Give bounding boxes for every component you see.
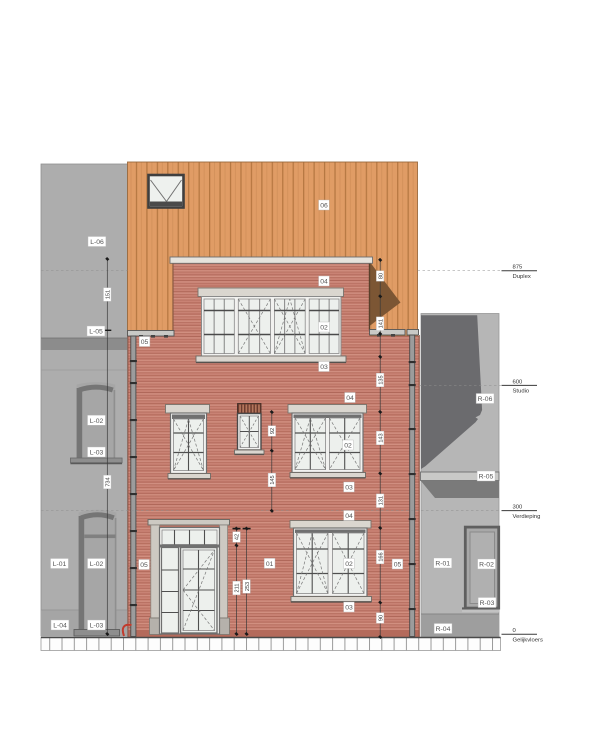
svg-text:05: 05 [141,339,149,346]
svg-text:L-03: L-03 [90,623,104,630]
svg-text:R-02: R-02 [479,562,494,569]
svg-text:42: 42 [235,534,241,540]
svg-text:R-05: R-05 [479,474,494,481]
svg-text:300: 300 [513,505,524,511]
svg-text:734: 734 [106,477,112,486]
svg-text:875: 875 [513,265,524,271]
svg-text:01: 01 [266,561,274,568]
svg-text:R-01: R-01 [435,561,450,568]
svg-text:L-05: L-05 [89,329,103,336]
svg-text:L-04: L-04 [53,623,67,630]
svg-text:L-03: L-03 [90,450,104,457]
svg-text:145: 145 [270,475,276,484]
svg-text:143: 143 [378,433,384,442]
svg-text:L-01: L-01 [53,561,67,568]
svg-text:02: 02 [344,443,352,450]
svg-text:Duplex: Duplex [513,274,531,280]
svg-text:Verdieping: Verdieping [513,514,541,520]
svg-text:04: 04 [320,279,328,286]
svg-text:L-02: L-02 [90,418,104,425]
svg-text:Gelijkvloers: Gelijkvloers [513,637,543,643]
svg-text:04: 04 [345,513,353,520]
svg-text:90: 90 [378,615,384,621]
svg-text:92: 92 [270,428,276,434]
svg-text:L-02: L-02 [90,561,104,568]
svg-text:R-03: R-03 [480,600,495,607]
svg-text:Studio: Studio [513,389,530,395]
svg-text:166: 166 [378,552,384,561]
svg-text:80: 80 [378,273,384,279]
svg-text:135: 135 [378,375,384,384]
svg-text:211: 211 [235,584,241,593]
svg-text:03: 03 [345,485,353,492]
svg-text:03: 03 [345,605,353,612]
svg-text:04: 04 [346,395,354,402]
svg-text:R-06: R-06 [478,396,493,403]
svg-text:R-04: R-04 [436,626,451,633]
svg-text:141: 141 [378,319,384,328]
svg-text:131: 131 [378,496,384,505]
svg-text:05: 05 [140,562,148,569]
svg-text:L-06: L-06 [90,239,104,246]
svg-text:600: 600 [513,379,524,385]
svg-text:253: 253 [245,582,251,591]
svg-text:06: 06 [320,203,328,210]
svg-text:03: 03 [320,364,328,371]
svg-text:151: 151 [106,290,112,299]
svg-text:02: 02 [345,561,353,568]
svg-text:02: 02 [320,325,328,332]
svg-text:05: 05 [394,562,402,569]
